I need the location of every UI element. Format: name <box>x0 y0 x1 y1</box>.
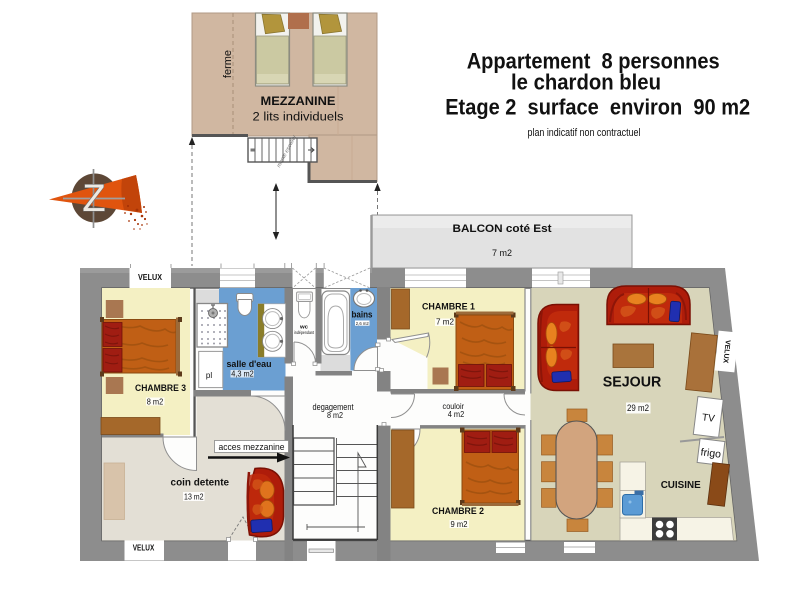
svg-text:4,3 m2: 4,3 m2 <box>231 370 254 379</box>
svg-text:CHAMBRE 1: CHAMBRE 1 <box>422 302 475 312</box>
svg-text:BALCON coté Est: BALCON coté Est <box>453 223 552 235</box>
svg-text:VELUX: VELUX <box>138 273 163 282</box>
svg-text:CUISINE: CUISINE <box>661 480 701 491</box>
svg-text:CHAMBRE 2: CHAMBRE 2 <box>432 506 484 516</box>
svg-text:7 m2: 7 m2 <box>492 248 512 258</box>
svg-text:le chardon bleu: le chardon bleu <box>511 70 661 95</box>
svg-text:MEZZANINE: MEZZANINE <box>261 95 336 108</box>
svg-text:pl: pl <box>206 371 212 380</box>
svg-text:coin detente: coin detente <box>171 477 230 489</box>
svg-text:indépendant: indépendant <box>294 330 315 335</box>
svg-text:acces mezzanine: acces mezzanine <box>219 442 285 453</box>
svg-text:Z: Z <box>82 178 105 220</box>
svg-text:TV: TV <box>701 412 715 425</box>
svg-text:bains: bains <box>352 310 373 320</box>
svg-text:8 m2: 8 m2 <box>327 411 343 420</box>
svg-text:ferme: ferme <box>222 50 234 78</box>
svg-text:CHAMBRE 3: CHAMBRE 3 <box>135 383 186 393</box>
svg-text:9 m2: 9 m2 <box>451 520 469 529</box>
svg-text:SEJOUR: SEJOUR <box>603 375 662 391</box>
svg-text:VELUX: VELUX <box>133 544 155 553</box>
svg-text:Etage 2 surface environ 90: Etage 2 surface environ 90 m2 <box>445 94 750 119</box>
svg-text:2 lits individuels: 2 lits individuels <box>253 110 344 124</box>
svg-text:2,6 m2: 2,6 m2 <box>356 321 369 326</box>
svg-text:13 m2: 13 m2 <box>184 493 204 502</box>
svg-text:4 m2: 4 m2 <box>448 410 465 419</box>
svg-text:8 m2: 8 m2 <box>147 398 164 407</box>
svg-text:29 m2: 29 m2 <box>627 403 649 413</box>
svg-text:frigo: frigo <box>700 446 722 460</box>
svg-text:plan indicatif non contractuel: plan indicatif non contractuel <box>528 127 641 139</box>
svg-text:7 m2: 7 m2 <box>436 318 455 327</box>
svg-text:salle d'eau: salle d'eau <box>227 359 272 370</box>
